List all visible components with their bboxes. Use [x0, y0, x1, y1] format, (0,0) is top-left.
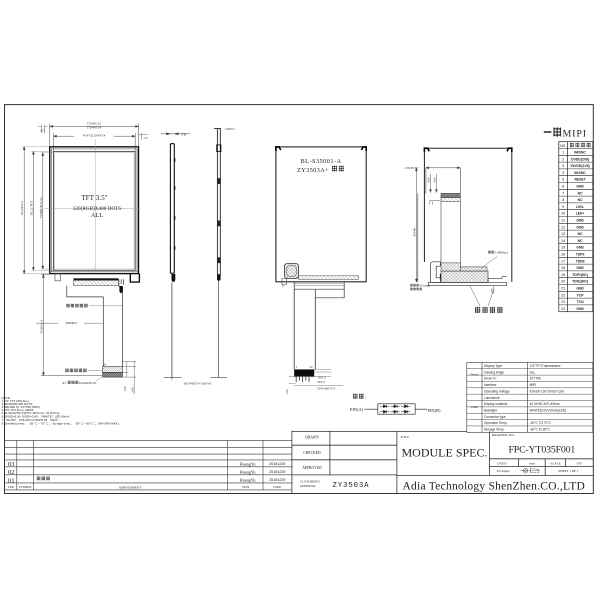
svg-text:PIN(A): PIN(A): [350, 407, 364, 412]
svg-text:37.58±0.2: 37.58±0.2: [87, 122, 101, 126]
svg-text:(94.44): (94.44): [412, 228, 416, 237]
svg-text:APPROVAL: APPROVAL: [300, 484, 316, 488]
svg-text:HuangYu: HuangYu: [240, 477, 257, 482]
svg-text:11: 11: [561, 219, 565, 223]
svg-text:Backlight: Backlight: [484, 408, 497, 412]
svg-text:Driver IC: Driver IC: [484, 377, 497, 381]
svg-text:1.49(Max): 1.49(Max): [495, 251, 508, 255]
svg-text:IOVDD(1V8): IOVDD(1V8): [571, 164, 590, 168]
svg-text:FIT: FIT: [577, 461, 582, 465]
svg-text:ALL: ALL: [530, 370, 536, 374]
svg-text:-20°C TO 70°C: -20°C TO 70°C: [530, 421, 552, 425]
svg-text:18: 18: [561, 266, 565, 270]
svg-text:TDN0: TDN0: [576, 259, 585, 263]
svg-text:0.5: 0.5: [143, 136, 147, 140]
svg-text:PIN(B): PIN(B): [428, 408, 441, 413]
svg-text:42.04±0.2: 42.04±0.2: [87, 125, 101, 129]
svg-text:Panel: Panel: [471, 372, 479, 376]
svg-text:15: 15: [561, 246, 565, 250]
svg-text:HuangYu: HuangYu: [240, 461, 257, 466]
svg-text:82.34±0.2: 82.34±0.2: [20, 201, 24, 215]
svg-text:TDP1(NC): TDP1(NC): [572, 273, 588, 277]
svg-text:NO.: NO.: [560, 144, 566, 148]
svg-text:42.04 (CD) A/A: 42.04 (CD) A/A: [82, 134, 105, 138]
svg-text:2: 2: [562, 157, 564, 161]
svg-text:5: 5: [562, 178, 564, 182]
svg-text:Operating Voltage: Operating Voltage: [484, 389, 510, 393]
svg-text:0.80: 0.80: [433, 177, 436, 182]
svg-text:MIPI: MIPI: [563, 128, 587, 139]
svg-text:14: 14: [561, 239, 565, 243]
svg-text:23: 23: [561, 300, 565, 304]
svg-text:Viewing Angle: Viewing Angle: [484, 370, 504, 374]
svg-text:UNITS: UNITS: [497, 461, 507, 465]
svg-text:P1: P1: [63, 381, 67, 385]
svg-text:13: 13: [561, 232, 565, 236]
svg-text:3: 3: [562, 164, 564, 168]
svg-text:LED+: LED+: [576, 212, 585, 216]
svg-text:1.50: 1.50: [123, 386, 127, 392]
svg-text:GND: GND: [576, 266, 584, 270]
svg-text:GND: GND: [576, 246, 584, 250]
svg-text:16: 16: [561, 253, 565, 257]
svg-text:0.5mm±0.05: 0.5mm±0.05: [79, 381, 97, 385]
svg-text:APPROVED: APPROVED: [302, 466, 322, 470]
svg-text:NC: NC: [578, 232, 583, 236]
svg-text:TDN1(NC): TDN1(NC): [572, 280, 588, 284]
svg-text:55.08±0.3: 55.08±0.3: [39, 320, 43, 334]
svg-text:19: 19: [561, 273, 565, 277]
svg-text:2.60±0.1: 2.60±0.1: [225, 128, 236, 131]
svg-text:17: 17: [561, 259, 565, 263]
svg-text:9: 9: [562, 205, 564, 209]
svg-text:0.350: 0.350: [318, 375, 325, 379]
svg-text:VER: VER: [8, 485, 15, 489]
svg-text:TCP: TCP: [577, 293, 585, 297]
svg-text:SHEET 1 OF 1: SHEET 1 OF 1: [558, 469, 579, 473]
svg-text:NC: NC: [578, 198, 583, 202]
svg-text:+12.300±0.05: +12.300±0.05: [317, 386, 336, 390]
svg-text:42.04*82.34*1.49mm: 42.04*82.34*1.49mm: [530, 402, 560, 406]
svg-text:01: 01: [8, 477, 15, 484]
svg-text:IOVdd=1.8V DVdd=2.8V: IOVdd=1.8V DVdd=2.8V: [530, 389, 566, 393]
svg-text:02: 02: [8, 469, 15, 476]
svg-text:Display contents: Display contents: [484, 402, 508, 406]
svg-text:1: 1: [562, 151, 564, 155]
svg-text:4: 4: [562, 171, 564, 175]
svg-text:24: 24: [561, 307, 565, 311]
svg-text:GND: GND: [576, 307, 584, 311]
svg-text:DRAWN: DRAWN: [305, 435, 319, 439]
svg-text:20181229: 20181229: [269, 470, 285, 474]
svg-text:20181229: 20181229: [269, 462, 285, 466]
svg-text:SYMBOL: SYMBOL: [19, 485, 32, 489]
svg-text:ALL: ALL: [91, 212, 104, 219]
svg-text:NC: NC: [578, 191, 583, 195]
svg-text:SCALE: SCALE: [550, 461, 560, 465]
svg-text:8: 8: [562, 198, 564, 202]
svg-text:RESET: RESET: [574, 178, 586, 182]
svg-text:DVDD(2V8): DVDD(2V8): [571, 157, 589, 161]
svg-text::: :: [365, 396, 366, 401]
svg-text:MIPI: MIPI: [530, 383, 537, 387]
svg-text:GND: GND: [576, 287, 584, 291]
svg-text:LED-: LED-: [576, 205, 584, 209]
svg-text:TFT 3.5″: TFT 3.5″: [81, 194, 107, 202]
svg-text:HuangYu: HuangYu: [240, 469, 257, 474]
svg-text:TCN: TCN: [577, 300, 585, 304]
svg-text:SIGN: SIGN: [242, 485, 250, 489]
svg-text:DRAWING NO.: DRAWING NO.: [492, 433, 515, 437]
svg-text:1.80: 1.80: [491, 288, 494, 293]
svg-text:GND: GND: [576, 219, 584, 223]
svg-text:20: 20: [561, 280, 565, 284]
svg-text:1.50: 1.50: [285, 389, 289, 395]
svg-text:GND: GND: [576, 225, 584, 229]
svg-text:Storage Temp.: Storage Temp.: [484, 428, 505, 432]
svg-text:20181229: 20181229: [269, 478, 285, 482]
svg-text:0.1: 0.1: [181, 132, 186, 136]
svg-text:3rd Angle: 3rd Angle: [496, 469, 510, 473]
svg-text:AMENDMENT: AMENDMENT: [119, 485, 143, 489]
svg-text:ZY3503A: ZY3503A: [333, 482, 370, 490]
svg-text:Display Type: Display Type: [484, 364, 502, 368]
svg-text:73.44(CD A.A): 73.44(CD A.A): [39, 197, 43, 218]
svg-text:Luminance: Luminance: [484, 396, 500, 400]
svg-text:8.Operating temp.： -20° C ~ 70: 8.Operating temp.： -20° C ~ 70° C ； Stor…: [2, 422, 121, 426]
svg-text:83.22 TFT: 83.22 TFT: [29, 200, 33, 215]
svg-text:(0.1mm): (0.1mm): [420, 284, 430, 287]
svg-text:WHITE(3.0V) 60mA(LED): WHITE(3.0V) 60mA(LED): [530, 408, 567, 412]
svg-text:TITLE: TITLE: [400, 435, 409, 439]
svg-text:10: 10: [561, 212, 565, 216]
svg-text:NC: NC: [578, 239, 583, 243]
svg-text:5.00: 5.00: [130, 387, 134, 393]
svg-text:TDP0: TDP0: [576, 253, 585, 257]
svg-text:CUSTOMER'S: CUSTOMER'S: [300, 480, 320, 484]
svg-text:0.180: 0.180: [317, 380, 324, 384]
svg-text:-30°C To 80°C: -30°C To 80°C: [530, 428, 551, 432]
svg-text:IM1/NC: IM1/NC: [574, 171, 586, 175]
svg-text:6: 6: [562, 185, 564, 189]
svg-text:MODULE SPEC.: MODULE SPEC.: [402, 445, 488, 459]
svg-text:ST7796: ST7796: [530, 377, 541, 381]
svg-text:C0PI8IC: C0PI8IC: [64, 321, 77, 325]
svg-text:FPC-YT035F001: FPC-YT035F001: [508, 445, 575, 456]
svg-text:IM0/NC: IM0/NC: [574, 151, 586, 155]
svg-text:3.5″TFT/Transmissive: 3.5″TFT/Transmissive: [530, 364, 561, 368]
svg-text:12: 12: [561, 225, 565, 229]
svg-text:03: 03: [8, 461, 15, 468]
svg-text:Operation Temp.: Operation Temp.: [484, 421, 508, 425]
svg-text:BL-S35001-A: BL-S35001-A: [301, 158, 342, 165]
svg-text:P1-FPC=0.500±0.05: P1-FPC=0.500±0.05: [184, 381, 212, 385]
svg-text:GND: GND: [576, 185, 584, 189]
svg-text:0.60: 0.60: [428, 177, 431, 182]
svg-text:DATE: DATE: [273, 485, 281, 489]
svg-text:21: 21: [561, 287, 565, 291]
svg-text:CHECKED: CHECKED: [303, 451, 321, 455]
svg-text:mm: mm: [529, 461, 535, 465]
svg-text:Connector type: Connector type: [484, 415, 506, 419]
svg-text:22: 22: [561, 293, 565, 297]
svg-text:7: 7: [562, 191, 564, 195]
svg-text:LCM: LCM: [471, 405, 478, 409]
svg-text:Interface: Interface: [484, 383, 497, 387]
svg-text:ZY3503A+: ZY3503A+: [297, 167, 329, 174]
svg-text:1.28: 1.28: [40, 128, 45, 131]
svg-text:Adia Technology ShenZhen.CO.,L: Adia Technology ShenZhen.CO.,LTD: [403, 481, 586, 493]
